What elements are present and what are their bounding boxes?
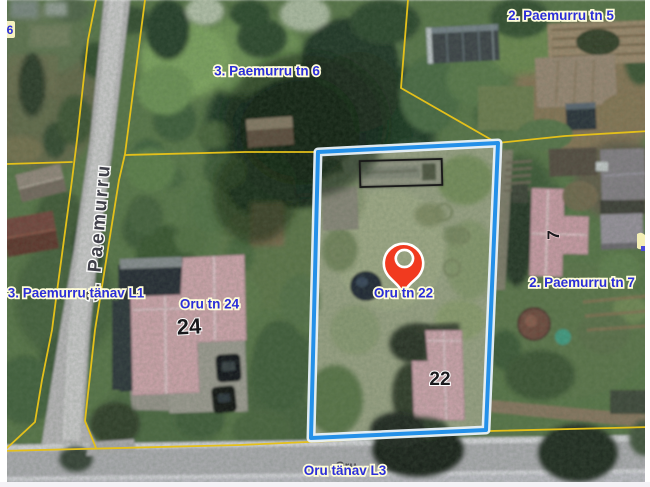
svg-text:Oru tn 22: Oru tn 22 (374, 286, 433, 301)
svg-text:24: 24 (176, 313, 203, 339)
svg-text:2. Paemurru tn 7: 2. Paemurru tn 7 (529, 275, 635, 290)
svg-text:3. Paemurru tn 6: 3. Paemurru tn 6 (214, 64, 320, 79)
svg-text:Oru tn 24: Oru tn 24 (180, 297, 240, 312)
svg-text:3. Paemurru tänav L1: 3. Paemurru tänav L1 (8, 286, 145, 301)
svg-text:7: 7 (544, 230, 563, 239)
svg-text:6: 6 (7, 23, 14, 37)
svg-text:Oru tänav L3: Oru tänav L3 (304, 463, 387, 478)
svg-text:2. Paemurru tn 5: 2. Paemurru tn 5 (508, 8, 614, 23)
svg-text:22: 22 (429, 369, 450, 390)
